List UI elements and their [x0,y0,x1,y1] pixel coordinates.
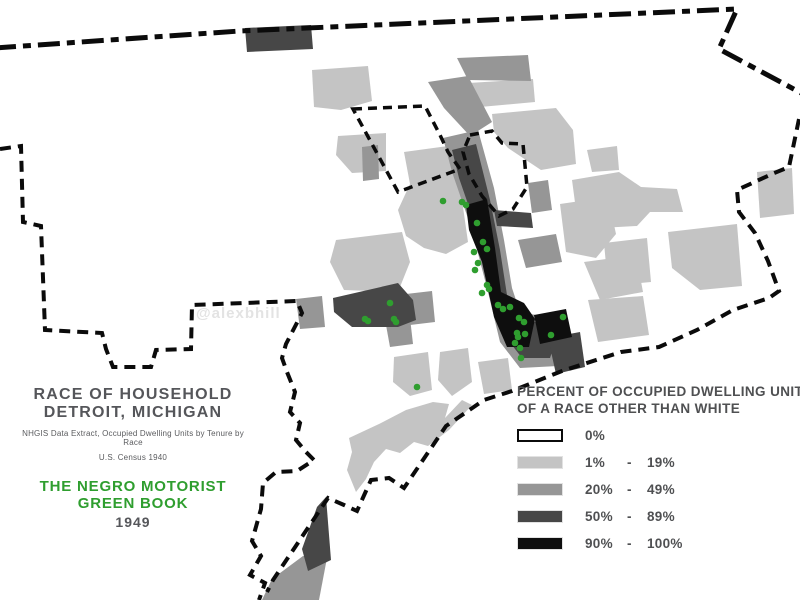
census-tract-light [478,358,512,394]
green-book-location-dot [486,286,493,293]
census-tract-light [604,238,651,286]
green-book-location-dot [518,355,525,362]
green-book-location-dot [414,384,421,391]
legend-item: 90%-100% [517,536,800,550]
legend-label: 50%-89% [585,509,675,524]
legend: PERCENT OF OCCUPIED DWELLING UNITS OF A … [517,383,800,563]
green-book-location-dot [479,290,486,297]
legend-swatch-medium [517,483,563,496]
green-book-location-dot [560,314,567,321]
green-book-location-dot [471,249,478,256]
watermark: @alexbhill [196,305,281,322]
legend-swatch-zero [517,429,563,442]
legend-swatch-dark [517,510,563,523]
county-boundary-line [0,9,800,94]
legend-swatch-light [517,456,563,469]
green-book-location-dot [440,198,447,205]
green-book-location-dot [463,202,470,209]
census-tract-medium [528,180,552,213]
map-title-line2: DETROIT, MICHIGAN [18,404,248,422]
green-book-location-dot [475,260,482,267]
legend-label: 20%-49% [585,482,675,497]
green-book-location-dot [387,300,394,307]
census-tract-dark [302,497,331,571]
greenbook-year: 1949 [18,514,248,530]
legend-title-line1: PERCENT OF OCCUPIED DWELLING UNITS [517,383,800,400]
census-tract-medium [518,234,562,268]
legend-item: 0% [517,428,800,442]
legend-item: 20%-49% [517,482,800,496]
greenbook-title-line2: GREEN BOOK [18,495,248,512]
data-source-line1: NHGIS Data Extract, Occupied Dwelling Un… [18,429,248,447]
green-book-location-dot [512,340,519,347]
legend-item: 50%-89% [517,509,800,523]
census-tract-light [347,400,472,492]
greenbook-title-line1: THE NEGRO MOTORIST [18,478,248,495]
census-tract-light [438,348,472,396]
census-tract-light [492,108,576,170]
legend-title-line2: OF A RACE OTHER THAN WHITE [517,400,800,417]
green-book-location-dot [522,331,529,338]
green-book-location-dot [521,319,528,326]
census-tract-light [312,66,372,110]
legend-swatch-black [517,537,563,550]
map-title-line1: RACE OF HOUSEHOLD [18,386,248,404]
census-tract-light [668,224,742,290]
green-book-location-dot [484,246,491,253]
legend-label: 90%-100% [585,536,683,551]
census-tract-light [393,352,432,396]
legend-label: 0% [585,428,647,443]
green-book-location-dot [500,306,507,313]
census-tract-dark [494,210,533,228]
green-book-location-dot [474,220,481,227]
green-book-location-dot [515,334,522,341]
census-tract-light [587,146,619,172]
green-book-location-dot [480,239,487,246]
green-book-location-dot [365,318,372,325]
legend-item: 1%-19% [517,455,800,469]
census-tract-light [588,296,649,342]
green-book-location-dot [393,319,400,326]
green-book-location-dot [472,267,479,274]
city-boundary-west [0,146,314,600]
legend-items: 0%1%-19%20%-49%50%-89%90%-100% [517,428,800,550]
legend-label: 1%-19% [585,455,675,470]
data-source-line2: U.S. Census 1940 [18,453,248,462]
census-tract-light [757,168,794,218]
title-block: RACE OF HOUSEHOLD DETROIT, MICHIGAN NHGI… [18,386,248,530]
green-book-location-dot [507,304,514,311]
green-book-location-dot [548,332,555,339]
green-book-location-dot [517,345,524,352]
